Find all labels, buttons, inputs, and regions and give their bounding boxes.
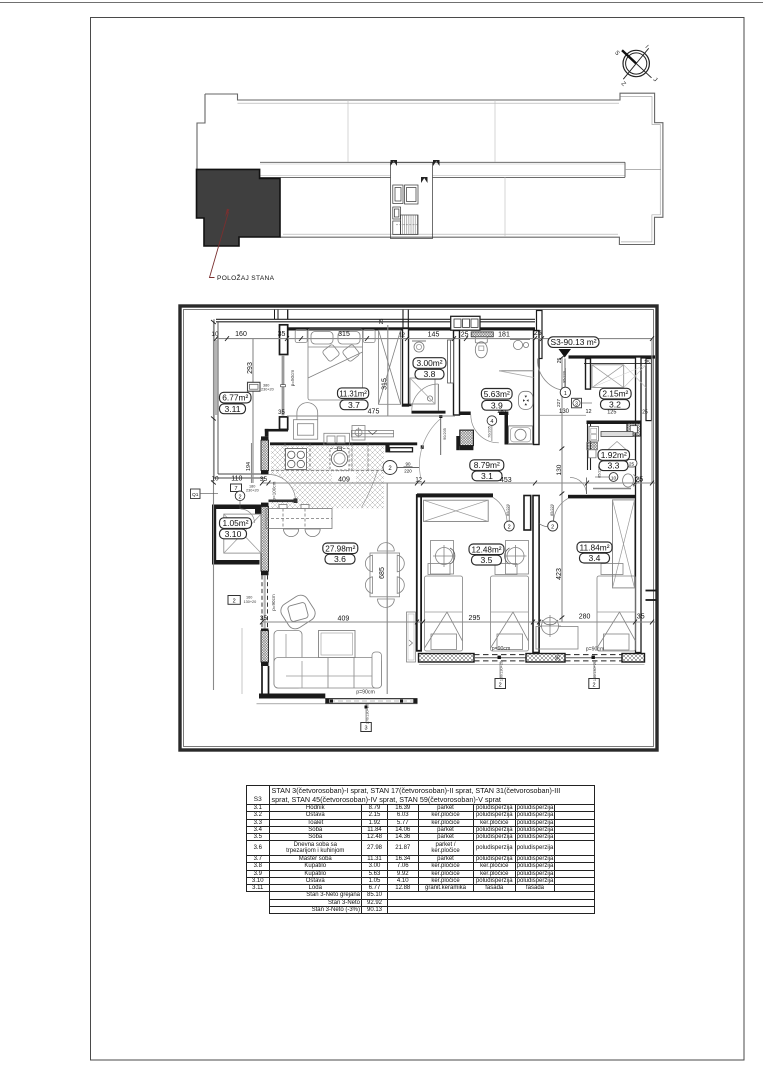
svg-text:409: 409	[338, 615, 350, 622]
svg-text:p=100cm: p=100cm	[272, 481, 277, 500]
svg-text:130: 130	[556, 464, 563, 475]
svg-text:3.1: 3.1	[481, 471, 493, 481]
svg-text:315: 315	[381, 378, 388, 390]
svg-text:110: 110	[231, 476, 242, 483]
svg-text:1: 1	[564, 391, 567, 397]
svg-text:3.9: 3.9	[491, 400, 503, 410]
svg-text:25: 25	[642, 410, 648, 416]
svg-text:3.3: 3.3	[608, 461, 620, 471]
svg-text:Z: Z	[620, 81, 627, 88]
svg-text:25: 25	[557, 358, 563, 364]
svg-text:85/220: 85/220	[506, 504, 510, 516]
svg-text:130: 130	[559, 409, 570, 415]
svg-text:35: 35	[260, 476, 268, 483]
svg-text:10: 10	[211, 331, 219, 338]
svg-text:295: 295	[469, 615, 481, 622]
svg-text:35: 35	[637, 614, 645, 621]
svg-text:S: S	[613, 50, 620, 57]
svg-text:12: 12	[415, 477, 422, 483]
svg-text:12.48m²: 12.48m²	[472, 544, 502, 554]
svg-text:6.77m²: 6.77m²	[222, 393, 248, 403]
svg-text:5.63m²: 5.63m²	[484, 389, 510, 399]
svg-text:25: 25	[629, 461, 635, 467]
svg-text:POLOŽAJ STANA: POLOŽAJ STANA	[217, 273, 275, 282]
svg-text:280: 280	[579, 614, 591, 621]
svg-text:85/220: 85/220	[550, 504, 554, 516]
svg-text:3: 3	[364, 726, 367, 732]
svg-text:70/205: 70/205	[488, 426, 492, 438]
svg-text:130+20: 130+20	[244, 600, 257, 604]
svg-text:315: 315	[338, 331, 350, 338]
svg-text:p=50cm: p=50cm	[290, 370, 295, 387]
svg-text:25: 25	[461, 332, 469, 339]
svg-text:2: 2	[233, 598, 236, 604]
svg-text:3.6: 3.6	[334, 554, 346, 564]
svg-text:145: 145	[428, 332, 440, 339]
svg-text:423: 423	[556, 568, 563, 580]
svg-text:90: 90	[405, 462, 411, 467]
svg-text:35: 35	[278, 331, 286, 338]
svg-text:35: 35	[260, 615, 268, 622]
svg-text:3.00m²: 3.00m²	[417, 358, 443, 368]
svg-text:90/205: 90/205	[443, 428, 447, 440]
svg-text:Q1: Q1	[192, 492, 199, 498]
svg-text:2.15m²: 2.15m²	[602, 389, 628, 399]
svg-text:27.98m²: 27.98m²	[325, 543, 355, 553]
svg-text:3: 3	[575, 401, 578, 407]
svg-text:160: 160	[235, 331, 247, 338]
svg-text:3.4: 3.4	[589, 553, 601, 563]
svg-text:95/220: 95/220	[563, 371, 567, 383]
svg-text:8.79m²: 8.79m²	[474, 460, 500, 470]
svg-text:25: 25	[379, 319, 385, 325]
svg-text:2: 2	[551, 525, 554, 531]
svg-text:125: 125	[607, 410, 616, 416]
svg-text:194: 194	[246, 462, 252, 471]
svg-text:12: 12	[585, 409, 591, 415]
svg-text:25: 25	[534, 330, 542, 337]
svg-text:3.2: 3.2	[609, 399, 621, 409]
svg-text:409: 409	[338, 476, 350, 483]
svg-text:35: 35	[556, 655, 562, 661]
svg-text:3.7: 3.7	[348, 400, 360, 410]
svg-text:10: 10	[611, 475, 617, 481]
svg-text:1.05m²: 1.05m²	[223, 518, 249, 528]
svg-text:230+20: 230+20	[246, 489, 259, 493]
svg-text:10: 10	[211, 476, 219, 483]
svg-text:p=90cm: p=90cm	[492, 646, 511, 652]
svg-text:3.10: 3.10	[225, 529, 242, 539]
svg-text:11.84m²: 11.84m²	[580, 542, 610, 552]
svg-text:220: 220	[404, 469, 412, 474]
svg-text:S3-90.13 m²: S3-90.13 m²	[551, 337, 597, 347]
svg-text:2: 2	[508, 525, 511, 531]
svg-text:11.31m²: 11.31m²	[339, 388, 367, 398]
svg-text:1.92m²: 1.92m²	[601, 450, 627, 460]
svg-text:25: 25	[635, 476, 643, 483]
svg-text:475: 475	[368, 408, 380, 415]
svg-text:p=90cm: p=90cm	[586, 646, 605, 652]
svg-text:7: 7	[234, 486, 237, 492]
svg-text:12: 12	[399, 333, 405, 339]
svg-text:293: 293	[247, 362, 254, 374]
svg-text:p=90cm: p=90cm	[271, 594, 276, 611]
svg-text:3.11: 3.11	[224, 404, 240, 414]
svg-text:J: J	[652, 77, 658, 83]
svg-text:25: 25	[644, 360, 650, 366]
svg-text:2: 2	[238, 494, 241, 500]
svg-text:2: 2	[499, 682, 502, 688]
svg-text:230+20: 230+20	[261, 388, 274, 392]
svg-text:2: 2	[592, 682, 595, 688]
svg-text:p=90cm: p=90cm	[356, 690, 375, 696]
svg-text:4: 4	[490, 419, 493, 425]
svg-text:160/130+20: 160/130+20	[593, 661, 597, 681]
svg-text:227: 227	[556, 399, 562, 407]
svg-text:3.5: 3.5	[481, 555, 493, 565]
svg-text:3.8: 3.8	[424, 369, 436, 379]
svg-text:685: 685	[379, 567, 386, 579]
svg-text:181: 181	[498, 332, 510, 339]
svg-text:35: 35	[278, 410, 285, 416]
